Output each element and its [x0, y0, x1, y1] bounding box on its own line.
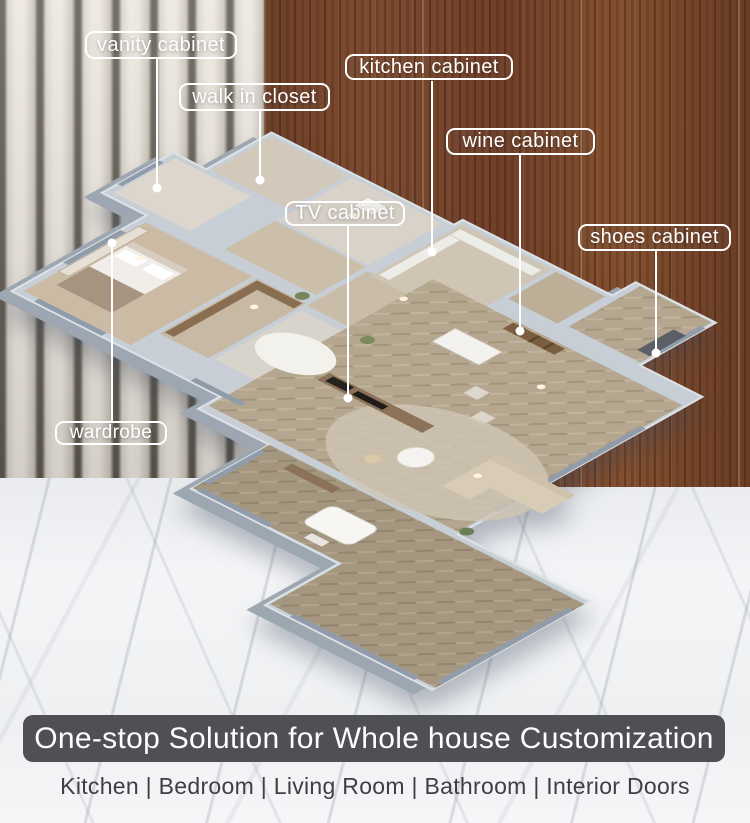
promo-image: vanity cabinet walk in closet kitchen ca… — [0, 0, 750, 823]
label-kitchen-cabinet: kitchen cabinet — [345, 54, 513, 80]
label-wine-cabinet: wine cabinet — [446, 128, 595, 155]
label-vanity-cabinet: vanity cabinet — [85, 31, 237, 59]
label-walk-in-closet: walk in closet — [179, 83, 330, 111]
banner-title: One-stop Solution for Whole house Custom… — [23, 715, 725, 762]
category-list: Kitchen | Bedroom | Living Room | Bathro… — [0, 769, 750, 803]
label-shoes-cabinet: shoes cabinet — [578, 224, 731, 251]
label-tv-cabinet: TV cabinet — [285, 201, 405, 226]
leader-lines — [0, 0, 750, 823]
label-wardrobe: wardrobe — [55, 421, 167, 445]
